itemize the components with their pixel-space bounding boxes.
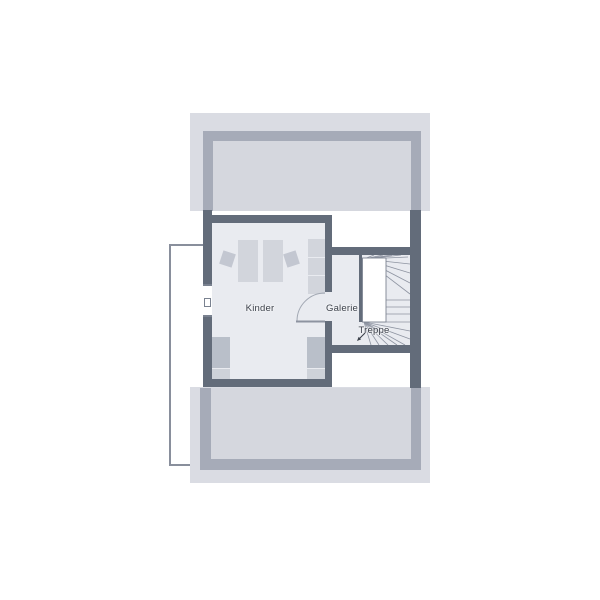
wall-right-exterior — [410, 210, 421, 388]
stair-direction-arrow-icon — [353, 329, 369, 345]
bed-right — [307, 337, 325, 379]
lower-floor-fill-bottom — [211, 388, 411, 459]
floor-plan: Kinder Galerie Treppe — [0, 0, 600, 600]
room-label-kinder: Kinder — [225, 303, 295, 315]
lower-floor-wall-band-bottom — [200, 388, 421, 470]
room-label-galerie: Galerie — [307, 303, 377, 315]
wall-kinder-bottom — [203, 379, 332, 387]
wall-galerie-bottom — [332, 345, 421, 353]
wall-kinder-right-lower — [325, 321, 332, 387]
lower-floor-fill-top — [213, 141, 411, 211]
staircase — [332, 247, 421, 353]
bed-left — [212, 337, 230, 379]
wall-kinder-top — [203, 215, 332, 223]
wall-kinder-right-upper — [325, 215, 332, 292]
wall-galerie-top — [332, 247, 421, 255]
lower-floor-wall-band-top — [203, 131, 421, 211]
desk-right — [263, 240, 283, 282]
wardrobe — [308, 239, 325, 294]
desk-left — [238, 240, 258, 282]
window-handle — [204, 298, 211, 307]
room-label-treppe: Treppe — [339, 325, 409, 337]
window — [203, 284, 212, 317]
